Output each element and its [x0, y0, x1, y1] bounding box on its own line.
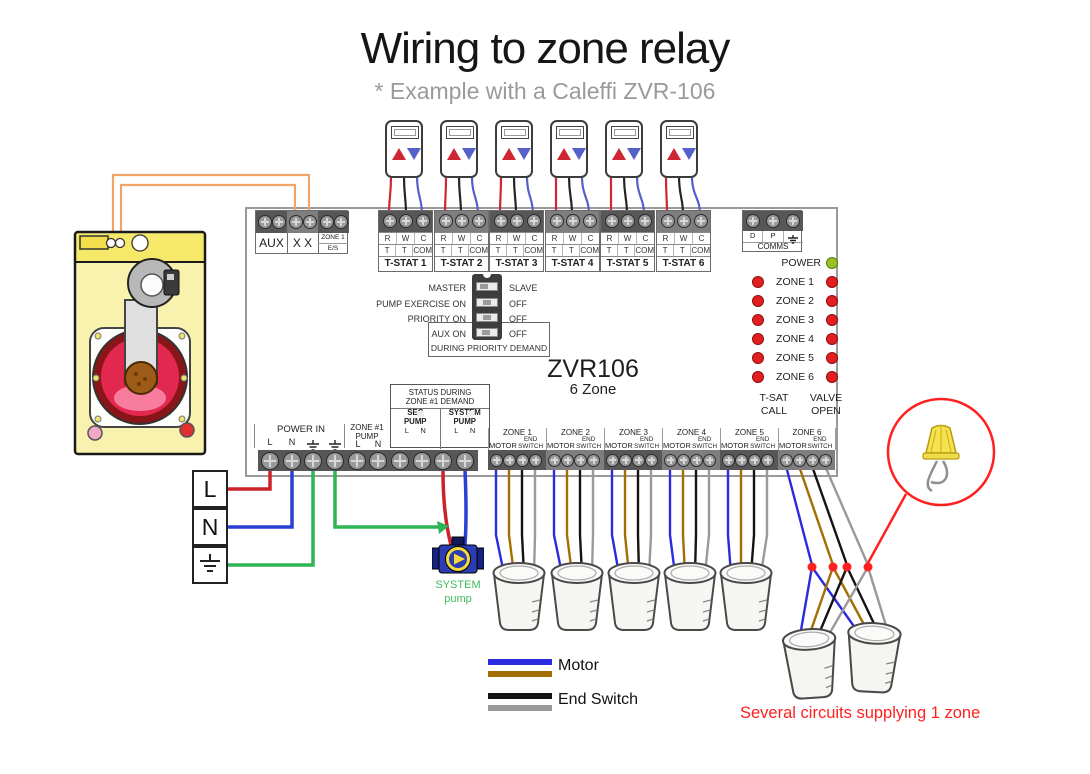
- zone6-strip-label: ZONE 6MOTORENDSWITCH: [778, 428, 836, 450]
- zone6-terminal-band: [778, 450, 835, 470]
- tstat-terminal-1: RWC TTCOM T-STAT 1: [378, 210, 433, 272]
- aux-terminal-block: AUX X X ZONE 1 E/S: [255, 210, 348, 254]
- terminal-label: C: [415, 233, 432, 244]
- l-label: L: [454, 426, 458, 435]
- dip-switch-4[interactable]: [476, 328, 498, 337]
- screw-icon: [583, 214, 597, 228]
- terminal-label: COM: [469, 245, 488, 256]
- temp-down-icon: [462, 148, 476, 160]
- dip-switch-3[interactable]: [476, 313, 498, 322]
- pump-label: PUMP: [391, 418, 440, 427]
- comms-d-label: D: [743, 231, 763, 242]
- terminal-label: W: [397, 233, 415, 244]
- terminal-label: W: [675, 233, 693, 244]
- screw-icon: [574, 454, 587, 467]
- power-label: POWER: [781, 257, 821, 269]
- power-led-row: POWER: [752, 256, 838, 270]
- earth-icon: [784, 231, 803, 242]
- zone3-strip-label: ZONE 3MOTORENDSWITCH: [604, 428, 662, 450]
- neutral-label: N: [202, 514, 219, 541]
- dip-label-off: OFF: [509, 299, 527, 309]
- screw-icon: [819, 454, 832, 467]
- screw-icon: [638, 214, 652, 228]
- dip-label-master: MASTER: [356, 283, 466, 293]
- screw-icon: [761, 454, 774, 467]
- temp-down-icon: [407, 148, 421, 160]
- screw-icon: [413, 452, 431, 470]
- valve-led: [826, 333, 838, 345]
- several-circuits-note: Several circuits supplying 1 zone: [740, 704, 980, 723]
- system-pump-icon: [432, 536, 484, 583]
- aux-es-label: E/S: [318, 244, 348, 253]
- screw-icon: [503, 454, 516, 467]
- terminal-label: R: [657, 233, 675, 244]
- temp-up-icon: [667, 148, 681, 160]
- screw-icon: [548, 454, 561, 467]
- aux-label: AUX: [256, 233, 288, 253]
- l-label: L: [262, 437, 278, 447]
- zone2-strip-label: ZONE 2MOTORENDSWITCH: [546, 428, 604, 450]
- aux-zone1-label: ZONE 1: [318, 233, 348, 244]
- tstat-name: T-STAT 5: [601, 256, 654, 271]
- temp-up-icon: [447, 148, 461, 160]
- screw-icon: [786, 214, 800, 228]
- screw-icon: [490, 454, 503, 467]
- dip-label-off: OFF: [509, 329, 527, 339]
- terminal-band: [490, 211, 543, 232]
- terminal-band: [379, 211, 432, 232]
- legend-motor-blue-swatch: [488, 659, 552, 665]
- screw-icon: [748, 454, 761, 467]
- zone5-strip-label: ZONE 5MOTORENDSWITCH: [720, 428, 778, 450]
- screw-icon: [455, 214, 469, 228]
- valve-open-caption: VALVEOPEN: [798, 392, 854, 418]
- terminal-label: C: [526, 233, 543, 244]
- terminal-label: COM: [580, 245, 599, 256]
- zone-led-label: ZONE 2: [776, 295, 814, 307]
- terminal-label: R: [435, 233, 453, 244]
- screw-icon: [304, 452, 322, 470]
- screw-icon: [261, 452, 279, 470]
- screw-icon: [416, 214, 430, 228]
- screw-icon: [677, 454, 690, 467]
- zone4-terminal-band: [662, 450, 720, 470]
- terminal-label: C: [693, 233, 710, 244]
- call-led: [752, 352, 764, 364]
- terminal-label: T: [618, 245, 635, 256]
- wire-nut-icon: [923, 426, 959, 492]
- zone-led-label: ZONE 6: [776, 371, 814, 383]
- temp-down-icon: [682, 148, 696, 160]
- terminal-band: [743, 211, 803, 231]
- thermostat-display: [446, 126, 474, 139]
- terminal-band: [287, 211, 318, 233]
- temp-up-icon: [392, 148, 406, 160]
- power-in-label: POWER IN: [258, 424, 344, 435]
- screw-icon: [472, 214, 486, 228]
- terminal-label: T: [657, 245, 674, 256]
- temp-up-icon: [612, 148, 626, 160]
- boiler-illustration: [72, 228, 208, 465]
- terminal-band: [657, 211, 710, 232]
- screw-icon: [621, 214, 635, 228]
- thermostat-display: [611, 126, 639, 139]
- screw-icon: [399, 214, 413, 228]
- temp-up-icon: [502, 148, 516, 160]
- n-label: N: [284, 437, 300, 447]
- screw-icon: [661, 214, 675, 228]
- valve-led: [826, 371, 838, 383]
- valve-led: [826, 314, 838, 326]
- tstat-name: T-STAT 6: [657, 256, 710, 271]
- screw-icon: [746, 214, 760, 228]
- screw-icon: [320, 215, 334, 229]
- zone-wires: [496, 466, 767, 574]
- terminal-label: C: [471, 233, 488, 244]
- divider: [344, 424, 345, 448]
- temp-down-icon: [572, 148, 586, 160]
- junction-dots: [808, 563, 873, 572]
- screw-icon: [383, 214, 397, 228]
- divider: [254, 424, 255, 448]
- terminal-band: [601, 211, 654, 232]
- screw-icon: [780, 454, 793, 467]
- thermostat-display: [391, 126, 419, 139]
- status-box-title: STATUS DURINGZONE #1 DEMAND: [391, 385, 489, 409]
- zone6-actuator-b: [842, 619, 904, 703]
- terminal-label: T: [674, 245, 691, 256]
- thermostat-4: [550, 120, 588, 178]
- temp-down-icon: [627, 148, 641, 160]
- valve-led: [826, 276, 838, 288]
- screw-icon: [677, 214, 691, 228]
- terminal-label: R: [546, 233, 564, 244]
- call-led: [752, 276, 764, 288]
- call-led: [752, 314, 764, 326]
- supply-wires: [228, 470, 466, 565]
- terminal-label: C: [582, 233, 599, 244]
- terminal-label: T: [435, 245, 452, 256]
- call-led: [752, 295, 764, 307]
- tstat-terminal-5: RWC TTCOM T-STAT 5: [600, 210, 655, 272]
- tstat-name: T-STAT 4: [546, 256, 599, 271]
- live-supply-box: L: [192, 470, 228, 508]
- dip-notch: [483, 272, 491, 278]
- dip-switch-1[interactable]: [476, 282, 498, 291]
- zone2-led-row: ZONE 2: [752, 294, 838, 308]
- aux-xx-label: X X: [287, 233, 319, 253]
- tstat-terminal-4: RWC TTCOM T-STAT 4: [545, 210, 600, 272]
- tstat-terminal-2: RWC TTCOM T-STAT 2: [434, 210, 489, 272]
- system-pump-caption: SYSTEMpump: [430, 578, 486, 606]
- tsat-call-caption: T-SATCALL: [746, 392, 802, 418]
- power-led: [826, 257, 838, 269]
- zone6-wires: [786, 466, 888, 636]
- callout-line: [868, 494, 906, 563]
- screw-icon: [606, 454, 619, 467]
- system-pump-cell: SYSTEM PUMP LN: [440, 409, 490, 449]
- live-label: L: [204, 476, 217, 503]
- comms-label: COMMS: [743, 242, 803, 251]
- screw-icon: [369, 452, 387, 470]
- screw-icon: [722, 454, 735, 467]
- valve-led: [826, 295, 838, 307]
- tstat-name: T-STAT 3: [490, 256, 543, 271]
- comms-p-label: P: [763, 231, 783, 242]
- call-led: [752, 333, 764, 345]
- terminal-band: [318, 211, 349, 233]
- terminal-label: T: [396, 245, 413, 256]
- terminal-label: COM: [413, 245, 432, 256]
- terminal-label: W: [453, 233, 471, 244]
- legend-endswitch-black-swatch: [488, 693, 552, 699]
- earth-icon: [198, 552, 222, 579]
- screw-icon: [806, 454, 819, 467]
- terminal-band: [546, 211, 599, 232]
- n-label: N: [420, 426, 425, 435]
- zone5-actuator: [718, 560, 774, 639]
- neutral-supply-box: N: [192, 508, 228, 546]
- terminal-label: T: [507, 245, 524, 256]
- zone-led-label: ZONE 5: [776, 352, 814, 364]
- legend-motor-label: Motor: [558, 657, 599, 675]
- thermostat-3: [495, 120, 533, 178]
- screw-icon: [587, 454, 600, 467]
- zone1-led-row: ZONE 1: [752, 275, 838, 289]
- thermostat-display: [666, 126, 694, 139]
- terminal-label: COM: [691, 245, 710, 256]
- terminal-label: T: [490, 245, 507, 256]
- screw-icon: [645, 454, 658, 467]
- model-zones-label: 6 Zone: [543, 381, 643, 398]
- tstat-name: T-STAT 1: [379, 256, 432, 271]
- dip-label-aux: AUX ON: [356, 329, 466, 339]
- zone-led-label: ZONE 1: [776, 276, 814, 288]
- screw-icon: [690, 454, 703, 467]
- zone6-actuator-a: [779, 624, 843, 709]
- zone2-actuator: [549, 560, 605, 639]
- tstat-terminal-3: RWC TTCOM T-STAT 3: [489, 210, 544, 272]
- screw-icon: [735, 454, 748, 467]
- zone4-actuator: [662, 560, 718, 639]
- screw-icon: [348, 452, 366, 470]
- zone1-actuator: [491, 560, 547, 639]
- zone4-led-row: ZONE 4: [752, 332, 838, 346]
- screw-icon: [529, 454, 542, 467]
- screw-icon: [439, 214, 453, 228]
- terminal-label: COM: [635, 245, 654, 256]
- thermostat-6: [660, 120, 698, 178]
- screw-icon: [766, 214, 780, 228]
- screw-icon: [694, 214, 708, 228]
- terminal-label: R: [601, 233, 619, 244]
- zone4-strip-label: ZONE 4MOTORENDSWITCH: [662, 428, 720, 450]
- tstat-terminal-6: RWC TTCOM T-STAT 6: [656, 210, 711, 272]
- terminal-label: C: [637, 233, 654, 244]
- temp-up-icon: [557, 148, 571, 160]
- screw-icon: [258, 215, 272, 229]
- power-terminal-band: [258, 450, 478, 471]
- screw-icon: [510, 214, 524, 228]
- terminal-label: T: [601, 245, 618, 256]
- legend-motor-brown-swatch: [488, 671, 552, 677]
- comms-terminal-block: D P COMMS: [742, 210, 802, 252]
- n-label: N: [370, 439, 386, 449]
- l-label: L: [405, 426, 409, 435]
- zone3-led-row: ZONE 3: [752, 313, 838, 327]
- dip-label-off: OFF: [509, 314, 527, 324]
- zone1-strip-label: ZONE 1MOTORENDSWITCH: [488, 428, 546, 450]
- legend-endswitch-label: End Switch: [558, 691, 638, 709]
- priority-demand-label: DURING PRIORITY DEMAND: [429, 343, 549, 353]
- pump-label: PUMP: [441, 418, 490, 427]
- terminal-label: W: [508, 233, 526, 244]
- wiring-diagram: Wiring to zone relay * Example with a Ca…: [0, 0, 1090, 774]
- model-label: ZVR106: [543, 355, 643, 384]
- screw-icon: [516, 454, 529, 467]
- screw-icon: [793, 454, 806, 467]
- l-label: L: [350, 439, 366, 449]
- screw-icon: [632, 454, 645, 467]
- thermostat-1: [385, 120, 423, 178]
- terminal-label: T: [452, 245, 469, 256]
- terminal-band: [435, 211, 488, 232]
- temp-down-icon: [517, 148, 531, 160]
- terminal-label: T: [546, 245, 563, 256]
- thermostat-5: [605, 120, 643, 178]
- callout-circle: [888, 399, 994, 505]
- screw-icon: [494, 214, 508, 228]
- terminal-label: W: [619, 233, 637, 244]
- screw-icon: [289, 215, 303, 229]
- zone-led-label: ZONE 3: [776, 314, 814, 326]
- valve-led: [826, 352, 838, 364]
- screw-icon: [456, 452, 474, 470]
- zone3-actuator: [606, 560, 662, 639]
- screw-icon: [664, 454, 677, 467]
- zone5-terminal-band: [720, 450, 778, 470]
- zone1-terminal-band: [488, 450, 546, 470]
- page-subtitle: * Example with a Caleffi ZVR-106: [0, 78, 1090, 105]
- dip-label-slave: SLAVE: [509, 283, 537, 293]
- screw-icon: [566, 214, 580, 228]
- thermostat-2: [440, 120, 478, 178]
- dip-switch-block: [472, 274, 502, 340]
- screw-icon: [605, 214, 619, 228]
- n-label: N: [470, 426, 475, 435]
- screw-icon: [334, 215, 348, 229]
- thermostat-display: [556, 126, 584, 139]
- zone6-led-row: ZONE 6: [752, 370, 838, 384]
- earth-supply-box: [192, 546, 228, 584]
- screw-icon: [550, 214, 564, 228]
- terminal-label: T: [379, 245, 396, 256]
- terminal-label: R: [379, 233, 397, 244]
- dip-label-pump-exercise: PUMP EXERCISE ON: [356, 299, 466, 309]
- screw-icon: [619, 454, 632, 467]
- zone3-terminal-band: [604, 450, 662, 470]
- zone5-led-row: ZONE 5: [752, 351, 838, 365]
- screw-icon: [561, 454, 574, 467]
- screw-icon: [527, 214, 541, 228]
- page-title: Wiring to zone relay: [0, 24, 1090, 74]
- screw-icon: [434, 452, 452, 470]
- aux-zone1-cell: ZONE 1 E/S: [318, 233, 348, 253]
- zone-led-label: ZONE 4: [776, 333, 814, 345]
- dip-label-priority: PRIORITY ON: [356, 314, 466, 324]
- terminal-label: T: [563, 245, 580, 256]
- screw-icon: [303, 215, 317, 229]
- thermostat-display: [501, 126, 529, 139]
- zone2-terminal-band: [546, 450, 604, 470]
- call-led: [752, 371, 764, 383]
- terminal-label: COM: [524, 245, 543, 256]
- screw-icon: [703, 454, 716, 467]
- terminal-label: W: [564, 233, 582, 244]
- screw-icon: [283, 452, 301, 470]
- earth-arrow: [437, 521, 449, 534]
- tstat-name: T-STAT 2: [435, 256, 488, 271]
- terminal-label: R: [490, 233, 508, 244]
- screw-icon: [272, 215, 286, 229]
- screw-icon: [326, 452, 344, 470]
- status-box: STATUS DURINGZONE #1 DEMAND SEC PUMP LN …: [390, 384, 490, 448]
- sec-pump-cell: SEC PUMP LN: [391, 409, 440, 449]
- dip-switch-2[interactable]: [476, 298, 498, 307]
- terminal-band: [256, 211, 287, 233]
- legend-endswitch-gray-swatch: [488, 705, 552, 711]
- screw-icon: [391, 452, 409, 470]
